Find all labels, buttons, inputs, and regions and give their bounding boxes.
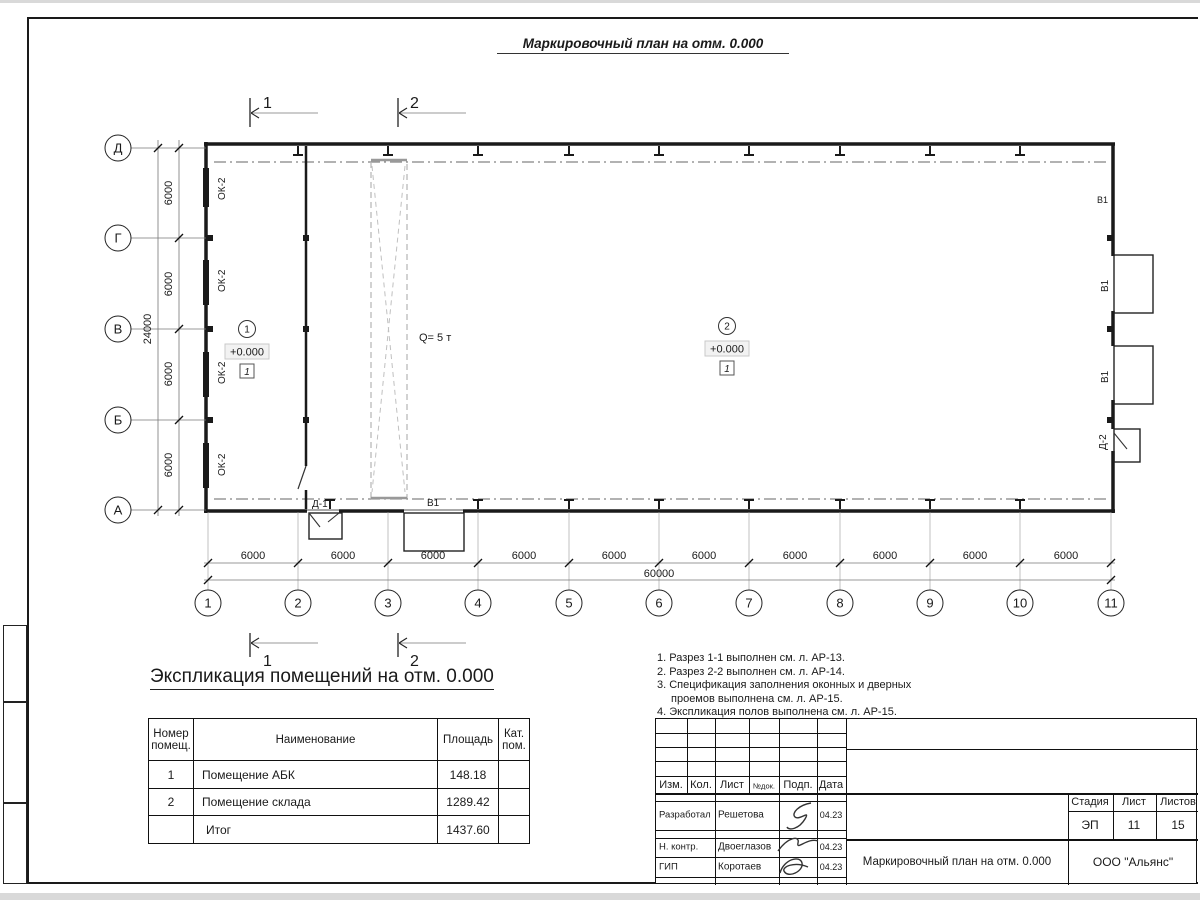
exterior-walls xyxy=(204,142,1115,513)
crane-capacity-label: Q= 5 т xyxy=(419,332,451,344)
stamp-col-kol: Кол. xyxy=(690,779,712,791)
explication-title: Экспликация помещений на отм. 0.000 xyxy=(150,666,494,690)
stamp-col-ndok: №док. xyxy=(753,782,775,791)
window-label-1: ОК-2 xyxy=(217,177,228,200)
axis-number-7: 7 xyxy=(745,596,752,611)
stamp-col-data: Дата xyxy=(819,779,843,791)
room-category xyxy=(499,816,530,844)
dim-left-2: 6000 xyxy=(163,272,175,296)
dim-total-height: 24000 xyxy=(142,314,154,345)
dim-bay-6: 6000 xyxy=(692,550,716,562)
title-block: Изм. Кол. Лист №док. Подп. Дата Разработ… xyxy=(655,718,1197,884)
axis-number-1: 1 xyxy=(204,596,211,611)
room1-floor-mark: 1 xyxy=(244,367,250,378)
section-marks: 1 2 1 2 xyxy=(250,95,466,670)
stamp-date-gip: 04.23 xyxy=(820,862,843,872)
bottom-dim-labels: 6000 6000 6000 6000 6000 6000 6000 6000 … xyxy=(241,550,1078,580)
stamp-name-developer: Решетова xyxy=(718,810,764,821)
gate-label-right-1: В1 xyxy=(1100,279,1111,292)
dim-bay-3: 6000 xyxy=(421,550,445,562)
axis-letter-a: А xyxy=(114,503,123,518)
axis-number-11: 11 xyxy=(1104,596,1118,611)
axis-letter-b: Б xyxy=(114,413,123,428)
dashdot-lines xyxy=(214,162,1108,499)
stamp-col-izm: Изм. xyxy=(659,779,683,791)
dim-left-3: 6000 xyxy=(163,362,175,386)
room-area: 1289.42 xyxy=(438,789,499,816)
dim-total-width: 60000 xyxy=(644,568,675,580)
axis-number-3: 3 xyxy=(384,596,391,611)
margin-box-3 xyxy=(3,803,27,884)
room2-elevation: +0.000 xyxy=(710,344,744,356)
axis-number-5: 5 xyxy=(565,596,572,611)
window-label-4: ОК-2 xyxy=(217,453,228,476)
room1-number: 1 xyxy=(244,325,250,336)
stamp-date-developer: 04.23 xyxy=(820,810,843,820)
notes-list: 1. Разрез 1-1 выполнен см. л. АР-13. 2. … xyxy=(657,652,1002,720)
dim-left-4: 6000 xyxy=(163,453,175,477)
table-row-total: Итог 1437.60 xyxy=(149,816,530,844)
dim-left-1: 6000 xyxy=(163,181,175,205)
room-number: 1 xyxy=(149,761,194,789)
axis-number-2: 2 xyxy=(294,596,301,611)
section-1-top-label: 1 xyxy=(263,95,272,112)
note-line: 3. Спецификация заполнения оконных и две… xyxy=(657,679,1002,693)
stamp-company: ООО "Альянс" xyxy=(1093,855,1173,869)
signature-gip xyxy=(774,853,816,881)
window-label-3: ОК-2 xyxy=(217,361,228,384)
gate-label-top-right: В1 xyxy=(1097,195,1108,205)
dim-bay-2: 6000 xyxy=(331,550,355,562)
room-area: 148.18 xyxy=(438,761,499,789)
margin-box-2 xyxy=(3,702,27,803)
stamp-sheet-label: Лист xyxy=(1122,796,1146,808)
floor-plan: Q= 5 т xyxy=(0,0,1200,680)
table-row: 1 Помещение АБК 148.18 xyxy=(149,761,530,789)
table-row: 2 Помещение склада 1289.42 xyxy=(149,789,530,816)
note-line: проемов выполнена см. л. АР-15. xyxy=(657,693,1002,707)
stamp-sheets-value: 15 xyxy=(1171,818,1184,832)
stamp-sheet-value: 11 xyxy=(1128,818,1140,832)
crane-zone xyxy=(371,160,407,498)
room-category xyxy=(499,789,530,816)
signature-developer xyxy=(781,799,819,833)
section-2-top-label: 2 xyxy=(410,95,419,112)
axis-number-4: 4 xyxy=(474,596,481,611)
stamp-stage-value: ЭП xyxy=(1081,818,1098,832)
opening-labels: ОК-2 ОК-2 ОК-2 ОК-2 Д-1 В1 В1 В1 В1 Д-2 xyxy=(217,177,1111,510)
axis-number-9: 9 xyxy=(926,596,933,611)
dim-bay-8: 6000 xyxy=(873,550,897,562)
axis-letter-g: Г xyxy=(114,231,121,246)
stamp-name-ncontr: Двоеглазов xyxy=(718,842,771,853)
room-name: Помещение АБК xyxy=(194,761,438,789)
window-label-2: ОК-2 xyxy=(217,269,228,292)
stamp-stage-label: Стадия xyxy=(1071,796,1109,808)
room-marker-2: 2 +0.000 1 xyxy=(705,318,749,376)
wall-pilasters xyxy=(207,235,1113,423)
stamp-date-ncontr: 04.23 xyxy=(820,842,843,852)
note-line: 2. Разрез 2-2 выполнен см. л. АР-14. xyxy=(657,666,1002,680)
column-marks xyxy=(293,146,1025,509)
stamp-sheets-label: Листов xyxy=(1160,796,1196,808)
stamp-col-podp: Подп. xyxy=(783,779,812,791)
opening-thresholds xyxy=(307,256,1114,510)
stamp-doc-title: Маркировочный план на отм. 0.000 xyxy=(863,856,1051,868)
dim-bay-1: 6000 xyxy=(241,550,265,562)
dim-bay-10: 6000 xyxy=(1054,550,1078,562)
stamp-name-gip: Коротаев xyxy=(718,862,761,873)
dim-bay-7: 6000 xyxy=(783,550,807,562)
dim-bay-5: 6000 xyxy=(602,550,626,562)
left-axis-bubbles: Д Г В Б А xyxy=(105,135,131,523)
room-marker-1: 1 +0.000 1 xyxy=(225,321,269,379)
door2-label: Д-2 xyxy=(1098,434,1109,450)
room-name: Помещение склада xyxy=(194,789,438,816)
room1-elevation: +0.000 xyxy=(230,347,264,359)
axis-letter-v: В xyxy=(114,322,123,337)
room-category xyxy=(499,761,530,789)
gate-label-bottom: В1 xyxy=(427,498,440,509)
stamp-role-ncontr: Н. контр. xyxy=(659,842,698,853)
bottom-axis-bubbles: 1 2 3 4 5 6 7 8 9 10 11 xyxy=(195,590,1124,616)
total-area: 1437.60 xyxy=(438,816,499,844)
stamp-role-developer: Разработал xyxy=(659,810,711,821)
page-edge-bottom xyxy=(0,893,1200,900)
gate-label-right-2: В1 xyxy=(1100,370,1111,383)
col-header-category: Кат. пом. xyxy=(499,719,530,761)
total-label: Итог xyxy=(194,816,438,844)
room2-floor-mark: 1 xyxy=(724,364,730,375)
axis-number-8: 8 xyxy=(836,596,843,611)
axis-number-6: 6 xyxy=(655,596,662,611)
stamp-col-list: Лист xyxy=(720,779,744,791)
room2-number: 2 xyxy=(724,322,730,333)
col-header-room-number: Номер помещ. xyxy=(149,719,194,761)
axis-letter-d: Д xyxy=(114,141,123,156)
col-header-area: Площадь xyxy=(438,719,499,761)
col-header-name: Наименование xyxy=(194,719,438,761)
explication-table: Номер помещ. Наименование Площадь Кат. п… xyxy=(148,718,530,844)
stamp-role-gip: ГИП xyxy=(659,862,678,873)
door1-label: Д-1 xyxy=(312,499,328,510)
room-number xyxy=(149,816,194,844)
dim-bay-9: 6000 xyxy=(963,550,987,562)
room-number: 2 xyxy=(149,789,194,816)
drawing-sheet: Маркировочный план на отм. 0.000 Q= 5 т xyxy=(0,0,1200,900)
axis-number-10: 10 xyxy=(1013,596,1027,611)
dim-bay-4: 6000 xyxy=(512,550,536,562)
note-line: 1. Разрез 1-1 выполнен см. л. АР-13. xyxy=(657,652,1002,666)
